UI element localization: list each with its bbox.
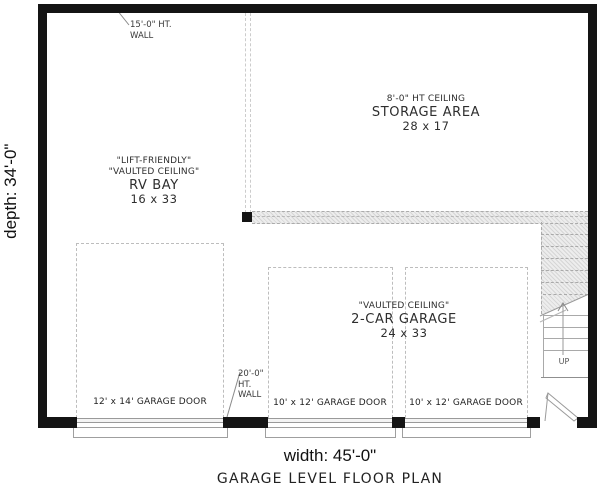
storage-area-label: 8'-0" HT CEILING STORAGE AREA 28 x 17: [351, 94, 501, 134]
depth-dimension-label: depth: 34'-0": [1, 126, 21, 256]
wall-bottom-segment-2: [223, 417, 268, 428]
stair-break-line-2: [540, 310, 566, 322]
garage-door-label-1: 12' x 14' GARAGE DOOR: [77, 397, 223, 408]
wall-20ft-line-3: WALL: [238, 390, 264, 401]
garage-note: "VAULTED CEILING": [329, 301, 479, 312]
wall-20ft-line-1: 20'-0": [238, 369, 264, 380]
wall-15ft-annotation: 15'-0" HT. WALL: [130, 20, 172, 41]
wall-bottom-segment-3: [392, 417, 405, 428]
garage-name: 2-CAR GARAGE: [329, 312, 479, 328]
storage-name: STORAGE AREA: [351, 105, 501, 121]
wall-15ft-line-1: 15'-0" HT.: [130, 20, 172, 31]
garage-door-label-2: 10' x 12' GARAGE DOOR: [268, 398, 392, 409]
wall-20ft-line-2: HT.: [238, 380, 264, 391]
wall-20ft-annotation: 20'-0" HT. WALL: [238, 369, 264, 401]
wall-bottom-segment-5: [577, 417, 597, 428]
stair-up-label: UP: [553, 357, 575, 367]
rv-bay-label: "LIFT-FRIENDLY" "VAULTED CEILING" RV BAY…: [79, 156, 229, 207]
storage-note: 8'-0" HT CEILING: [351, 94, 501, 105]
wall-right: [588, 4, 597, 428]
wall-bottom-segment-1: [38, 417, 77, 428]
entry-door-leaf: [546, 393, 578, 421]
page-title: GARAGE LEVEL FLOOR PLAN: [130, 471, 530, 488]
rv-bay-name: RV BAY: [79, 178, 229, 194]
rv-bay-note-2: "VAULTED CEILING": [79, 167, 229, 178]
wall-15ft-line-2: WALL: [130, 31, 172, 42]
rv-bay-dims: 16 x 33: [79, 193, 229, 207]
rv-bay-note-1: "LIFT-FRIENDLY": [79, 156, 229, 167]
two-car-garage-label: "VAULTED CEILING" 2-CAR GARAGE 24 x 33: [329, 301, 479, 341]
storage-dims: 28 x 17: [351, 120, 501, 134]
wall-left: [38, 4, 47, 428]
wall-top: [38, 4, 597, 13]
width-dimension-label: width: 45'-0": [130, 446, 530, 466]
wall-bottom-segment-4: [527, 417, 540, 428]
floor-plan-canvas: "LIFT-FRIENDLY" "VAULTED CEILING" RV BAY…: [0, 0, 600, 491]
garage-dims: 24 x 33: [329, 327, 479, 341]
garage-door-label-3: 10' x 12' GARAGE DOOR: [405, 398, 527, 409]
plan-linework: [0, 0, 600, 491]
